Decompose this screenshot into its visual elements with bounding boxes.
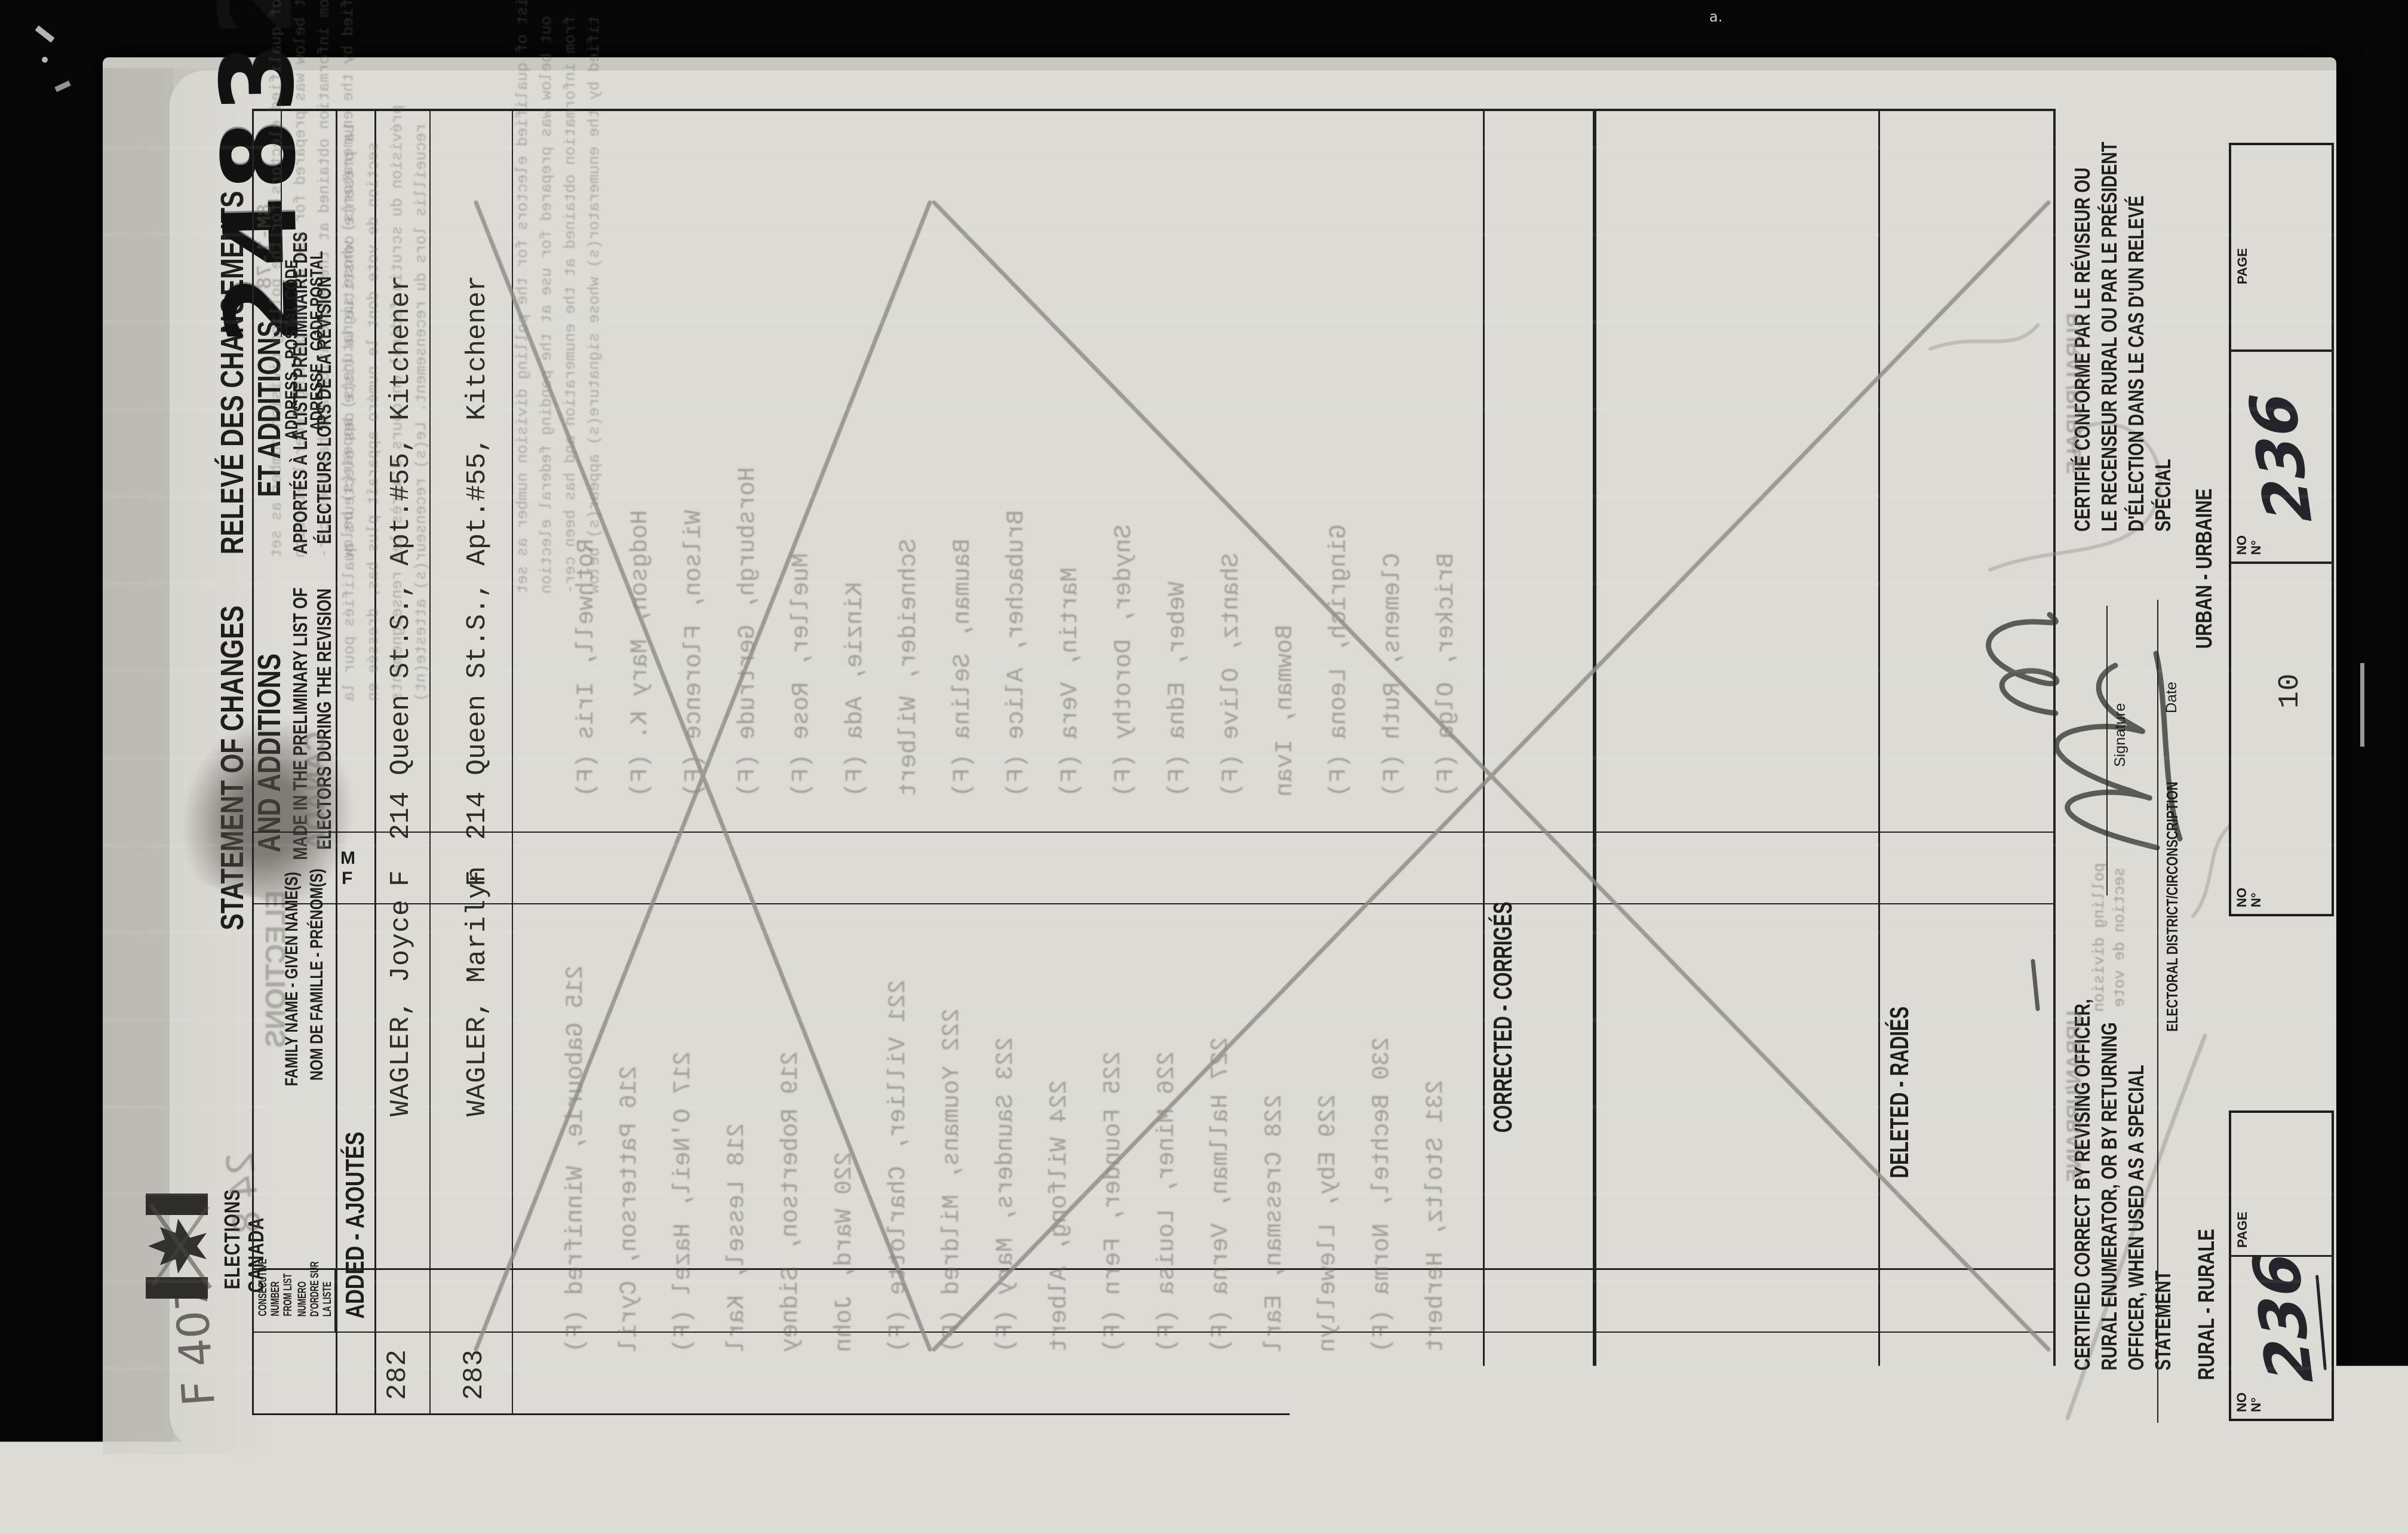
signature-line [2106, 606, 2108, 895]
urban-page-label: PAGE [2235, 248, 2250, 284]
urban-ghost: URBAN/URBAINE [2063, 1011, 2086, 1182]
electoral-district-label: ELECTORAL DISTRICT/CIRCONSCRIPTION [2163, 747, 2182, 1067]
rural-no-label: NON° [2235, 1392, 2263, 1412]
urban-box-divider-2 [2229, 349, 2334, 352]
urban-no-label-1: NON° [2235, 888, 2263, 907]
urban-label: URBAN - URBAINE [2192, 466, 2217, 671]
urban-box-divider-1 [2229, 562, 2334, 564]
film-scratch-mark [35, 26, 55, 43]
date-label: Date [2163, 682, 2180, 713]
film-scratch-mark [42, 57, 48, 63]
film-edge-mark: a. [1709, 8, 1722, 25]
film-edge-sliver [2360, 663, 2364, 747]
scanned-document-page: { "page": { "serial": "24832", "form_num… [0, 0, 2408, 1534]
section-vote-ghost: section de vote [2111, 867, 2128, 1007]
scanned-paper-sheet: F 407 ELECTIONS CANADA 24 8 STATEMENT OF… [103, 57, 2336, 1465]
rural-ghost: RURAL/RURALE [2063, 313, 2086, 474]
film-scratch-mark [54, 81, 70, 92]
pencil-crossout-marks [103, 68, 2336, 1454]
rural-label: RURAL - RURALE [2194, 1208, 2220, 1401]
urban-no-typed-value: 10 [2274, 673, 2306, 708]
district-and-date-line [2157, 600, 2158, 1423]
elections-form-f407: F 407 ELECTIONS CANADA 24 8 STATEMENT OF… [103, 68, 2336, 1454]
rural-page-label: PAGE [2235, 1211, 2250, 1248]
signature-label: Signature [2112, 703, 2129, 767]
urban-no-label-2: NON° [2235, 535, 2263, 555]
polling-division-ghost: polling division [2090, 863, 2108, 1012]
